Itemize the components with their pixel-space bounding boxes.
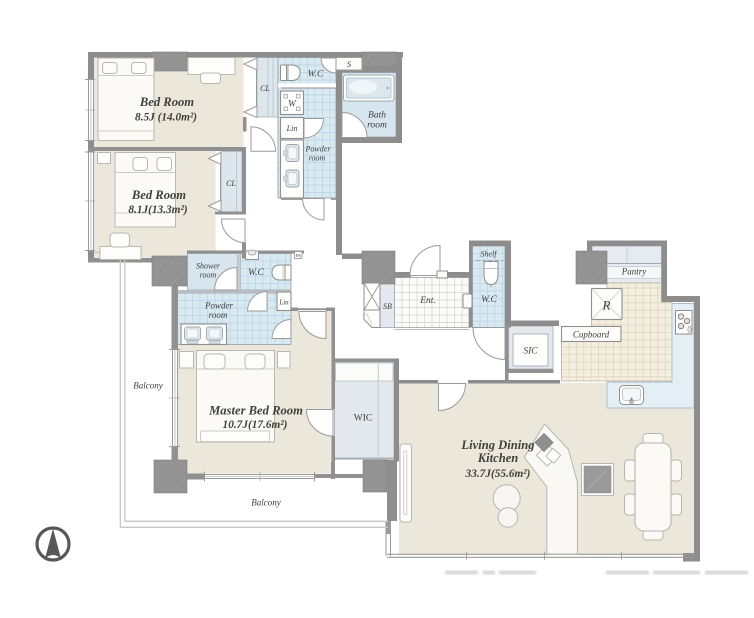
svg-text:SIC: SIC (523, 347, 538, 357)
svg-text:Lin: Lin (278, 299, 289, 307)
svg-text:33.7J(55.6m²): 33.7J(55.6m²) (465, 468, 531, 480)
svg-text:Powder: Powder (305, 145, 332, 154)
svg-text:8.1J(13.3m²): 8.1J(13.3m²) (128, 204, 187, 216)
svg-text:Lin: Lin (286, 124, 298, 133)
svg-text:Balcony: Balcony (133, 381, 163, 391)
svg-text:Living Dining: Living Dining (460, 438, 534, 452)
svg-text:WIC: WIC (354, 414, 372, 424)
svg-text:W: W (288, 100, 297, 110)
svg-text:Ent.: Ent. (419, 296, 436, 306)
svg-text:CL: CL (226, 179, 236, 188)
svg-text:W.C: W.C (248, 268, 264, 278)
svg-text:Pantry: Pantry (621, 267, 647, 277)
svg-text:W.C: W.C (308, 70, 324, 80)
svg-text:Bed Room: Bed Room (131, 188, 186, 202)
svg-text:room: room (367, 121, 387, 131)
svg-text:room: room (309, 154, 326, 163)
svg-text:SB: SB (383, 302, 392, 311)
svg-text:Bed Room: Bed Room (139, 95, 194, 109)
svg-text:Balcony: Balcony (251, 498, 281, 508)
svg-text:Bath: Bath (368, 111, 386, 121)
svg-text:Shelf: Shelf (481, 250, 499, 259)
svg-text:R: R (602, 298, 611, 313)
svg-text:Master Bed Room: Master Bed Room (208, 404, 303, 418)
svg-text:room: room (200, 271, 217, 280)
svg-text:PS: PS (295, 253, 302, 258)
svg-text:S: S (347, 60, 351, 69)
svg-text:W.C: W.C (481, 295, 497, 305)
svg-text:Cupboard: Cupboard (573, 330, 610, 340)
svg-text:8.5J (14.0m²): 8.5J (14.0m²) (135, 112, 197, 124)
svg-text:Powder: Powder (204, 301, 233, 311)
svg-text:Shower: Shower (196, 262, 221, 271)
svg-text:room: room (209, 310, 228, 320)
svg-text:CL: CL (260, 84, 270, 93)
svg-text:10.7J(17.6m²): 10.7J(17.6m²) (223, 419, 288, 431)
svg-text:Kitchen: Kitchen (477, 451, 519, 465)
